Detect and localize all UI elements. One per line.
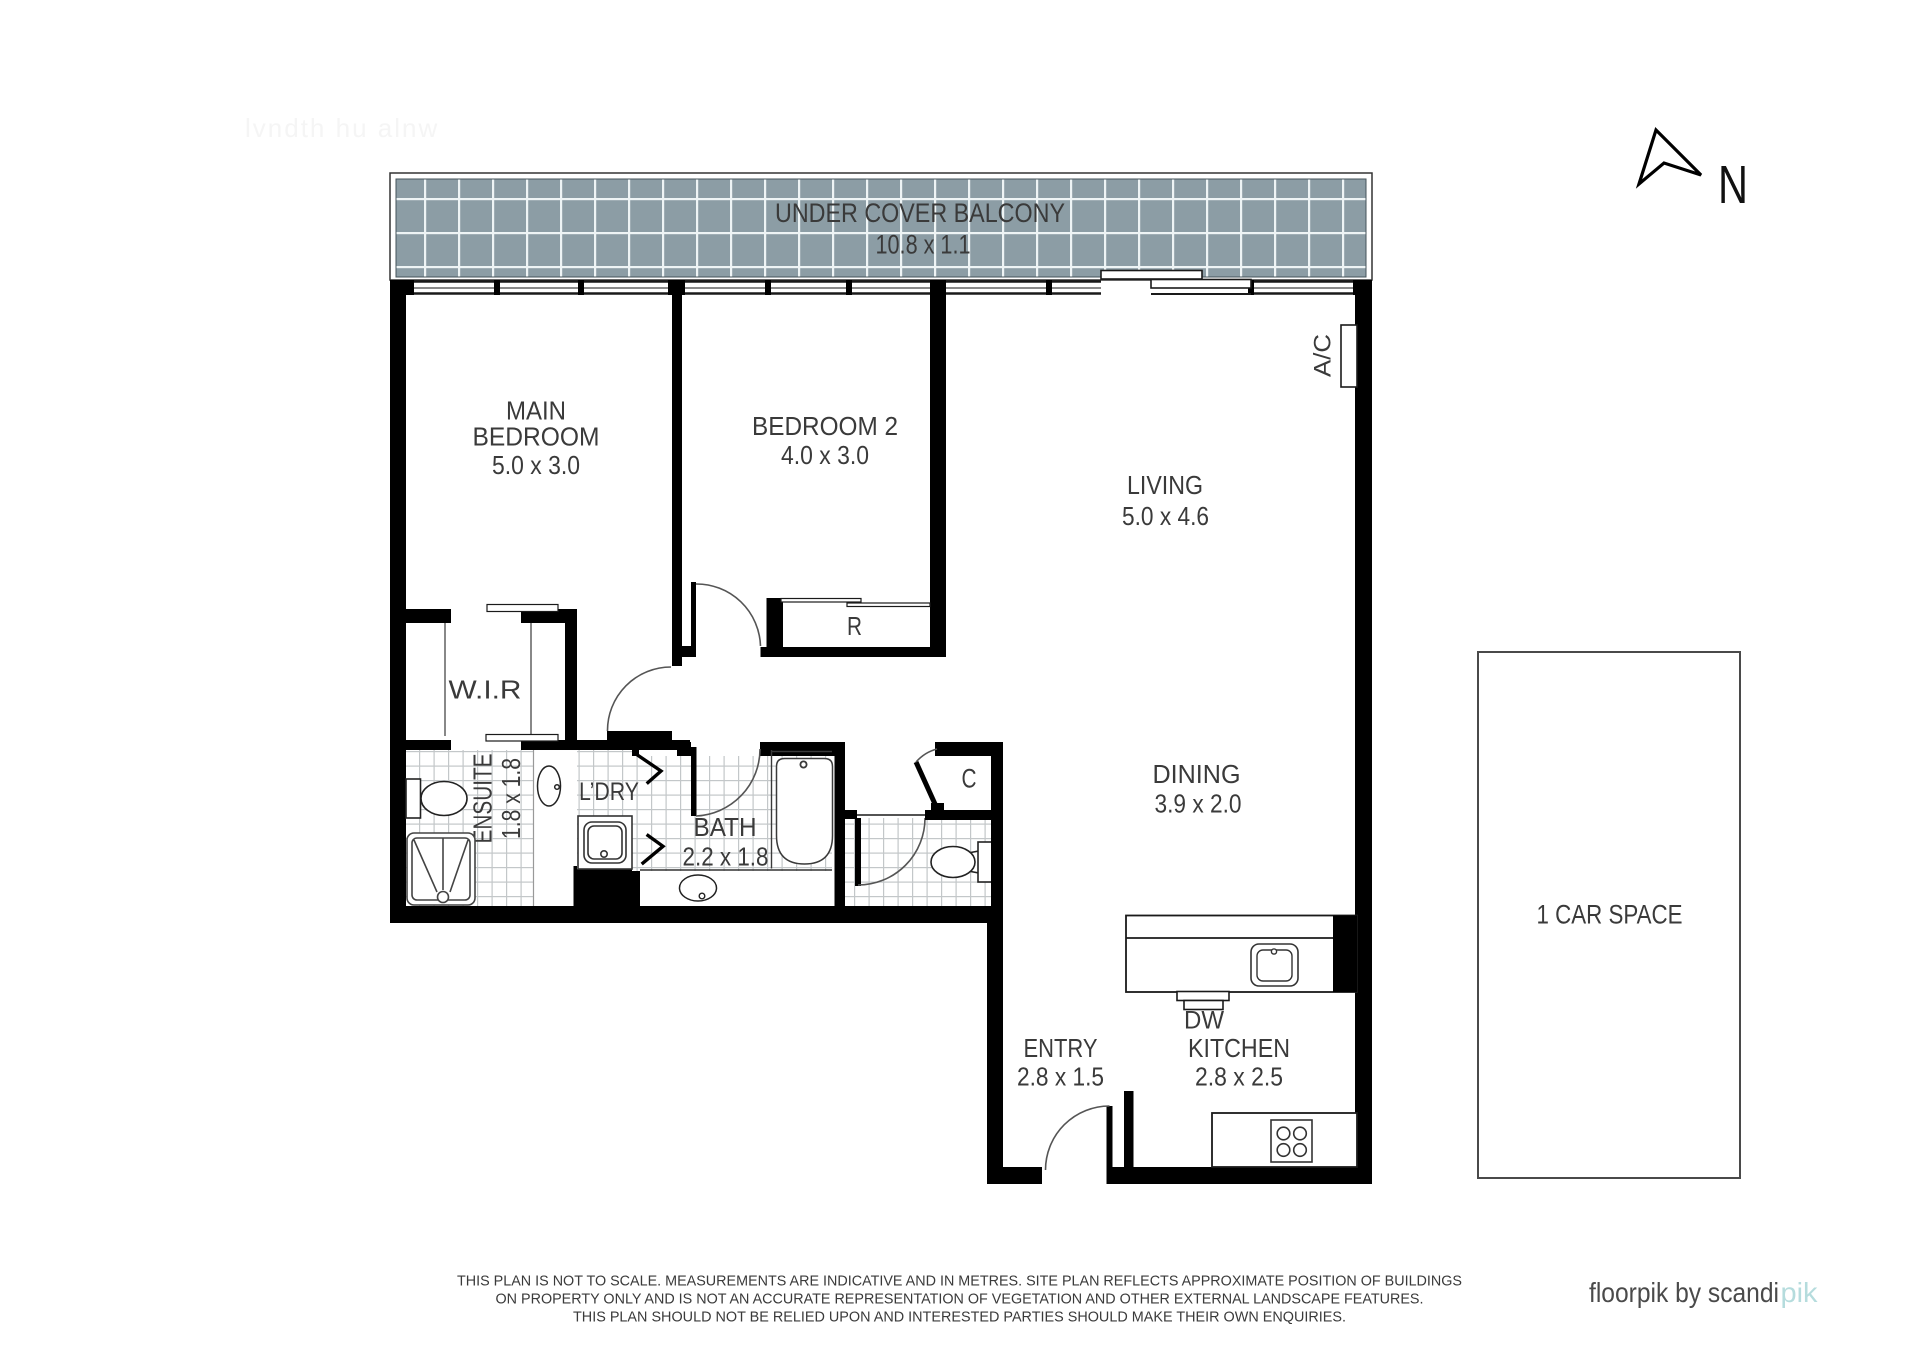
svg-text:UNDER COVER BALCONY: UNDER COVER BALCONY xyxy=(775,198,1065,228)
svg-text:ENSUITE: ENSUITE xyxy=(468,754,498,844)
svg-text:L’DRY: L’DRY xyxy=(579,778,639,806)
svg-text:1 CAR SPACE: 1 CAR SPACE xyxy=(1537,900,1683,930)
svg-text:pik: pik xyxy=(1781,1277,1819,1308)
svg-text:2.8 x 1.5: 2.8 x 1.5 xyxy=(1017,1062,1104,1092)
svg-text:2.8 x 2.5: 2.8 x 2.5 xyxy=(1195,1062,1283,1092)
svg-text:DW: DW xyxy=(1184,1007,1224,1035)
svg-text:3.9 x 2.0: 3.9 x 2.0 xyxy=(1155,789,1242,819)
svg-text:DINING: DINING xyxy=(1153,759,1241,789)
svg-text:BEDROOM 2: BEDROOM 2 xyxy=(752,411,898,441)
svg-text:R: R xyxy=(847,611,862,641)
svg-text:N: N xyxy=(1718,155,1748,215)
svg-text:1.8 x 1.8: 1.8 x 1.8 xyxy=(496,758,526,839)
svg-text:W.I.R: W.I.R xyxy=(449,675,522,705)
svg-text:5.0 x 3.0: 5.0 x 3.0 xyxy=(492,450,580,480)
svg-text:THIS PLAN SHOULD NOT BE RELIED: THIS PLAN SHOULD NOT BE RELIED UPON AND … xyxy=(573,1309,1346,1326)
svg-text:KITCHEN: KITCHEN xyxy=(1188,1033,1290,1063)
svg-text:10.8 x 1.1: 10.8 x 1.1 xyxy=(876,230,971,260)
svg-text:BEDROOM: BEDROOM xyxy=(473,422,600,452)
svg-text:ON PROPERTY ONLY AND IS NOT AN: ON PROPERTY ONLY AND IS NOT AN ACCURATE … xyxy=(496,1291,1424,1308)
svg-text:5.0 x 4.6: 5.0 x 4.6 xyxy=(1122,501,1209,531)
svg-text:BATH: BATH xyxy=(694,812,757,842)
svg-text:4.0 x 3.0: 4.0 x 3.0 xyxy=(781,440,869,470)
svg-text:ENTRY: ENTRY xyxy=(1024,1033,1098,1063)
svg-text:lvndth hu alnw: lvndth hu alnw xyxy=(245,113,439,143)
svg-text:LIVING: LIVING xyxy=(1127,470,1203,500)
svg-text:2.2 x 1.8: 2.2 x 1.8 xyxy=(683,842,769,872)
svg-text:THIS PLAN IS NOT TO SCALE. MEA: THIS PLAN IS NOT TO SCALE. MEASUREMENTS … xyxy=(457,1273,1462,1290)
svg-text:floorpik by scandi: floorpik by scandi xyxy=(1589,1277,1779,1308)
svg-text:C: C xyxy=(962,764,977,794)
svg-text:A/C: A/C xyxy=(1310,334,1337,377)
